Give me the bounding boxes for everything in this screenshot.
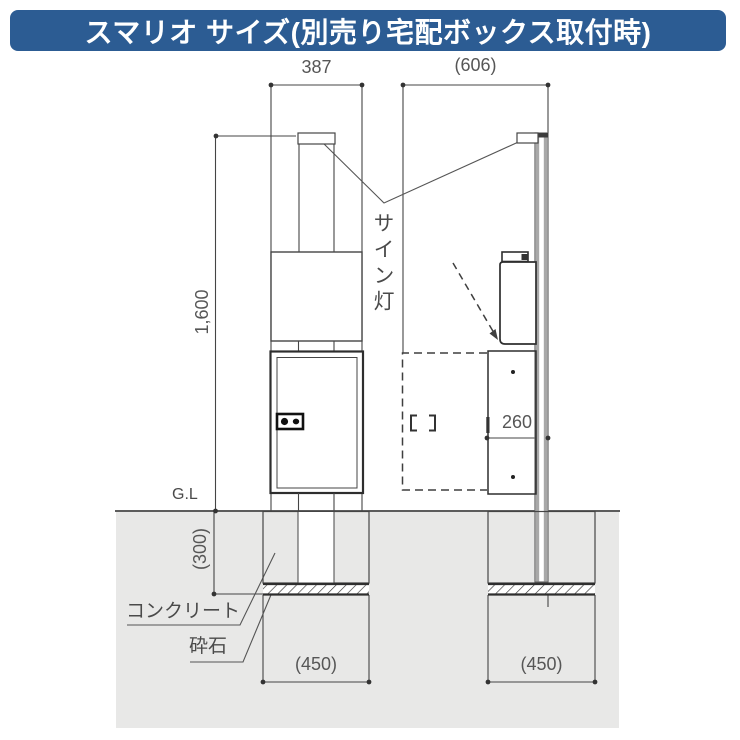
lock-icon: [277, 414, 303, 429]
dashed-lock-brackets: [411, 416, 435, 431]
delivery-box-open-dashed: [403, 353, 488, 490]
dim-foundation-depth: (300): [190, 517, 210, 581]
dim-foundation-width-front: (450): [263, 654, 369, 674]
gravel-hatch-side: [488, 583, 595, 595]
light-cap-front: [298, 133, 335, 144]
side-view: [403, 133, 596, 595]
dim-foundation-width-side: (450): [488, 654, 595, 674]
front-view: [263, 133, 369, 595]
screenshot-root: スマリオ サイズ(別売り宅配ボックス取付時): [0, 0, 740, 740]
dim-box-depth: 260: [486, 412, 548, 432]
gravel-hatch-front: [263, 583, 369, 595]
sign-light-label: サイン灯: [367, 212, 397, 316]
post-in-foundation: [298, 512, 334, 584]
dimension-drawing: [0, 0, 740, 740]
ground-level-label: G.L: [172, 486, 198, 504]
dim-total-height: 1,600: [192, 280, 212, 344]
crushed-stone-label: 砕石: [189, 636, 227, 657]
light-cap-side: [517, 133, 538, 143]
sign-body-side: [500, 262, 536, 344]
concrete-label: コンクリート: [126, 601, 240, 622]
sign-panel-front: [271, 252, 362, 341]
dim-side-total-depth: (606): [403, 55, 548, 75]
open-direction-arrow-icon: [453, 263, 494, 333]
post-front: [299, 144, 334, 252]
dim-front-width: 387: [271, 57, 362, 77]
